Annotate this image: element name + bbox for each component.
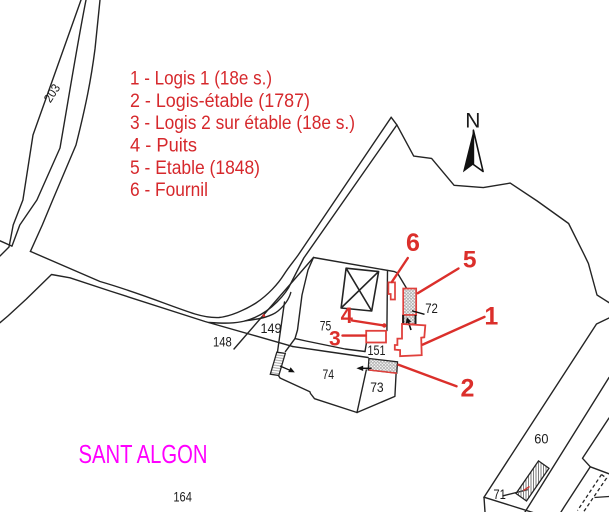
svg-text:1 - Logis 1 (18e s.): 1 - Logis 1 (18e s.) — [130, 69, 272, 90]
svg-text:N: N — [465, 110, 480, 133]
svg-text:72: 72 — [425, 301, 438, 316]
svg-text:5: 5 — [463, 247, 477, 274]
svg-text:149: 149 — [261, 321, 282, 336]
svg-text:6: 6 — [406, 229, 420, 257]
svg-text:6 - Fournil: 6 - Fournil — [130, 180, 208, 201]
svg-text:SANT ALGON: SANT ALGON — [79, 441, 208, 469]
svg-text:5 - Etable (1848): 5 - Etable (1848) — [130, 158, 260, 179]
svg-text:3 - Logis 2 sur étable (18e s.: 3 - Logis 2 sur étable (18e s.) — [130, 113, 355, 134]
svg-text:60: 60 — [534, 431, 548, 447]
svg-text:164: 164 — [173, 490, 192, 505]
svg-text:1: 1 — [484, 302, 498, 330]
svg-text:4 - Puits: 4 - Puits — [130, 136, 197, 157]
svg-text:2: 2 — [461, 375, 475, 403]
svg-text:73: 73 — [370, 380, 384, 395]
svg-text:75: 75 — [320, 318, 332, 333]
svg-text:148: 148 — [213, 334, 232, 349]
svg-text:2 - Logis-étable (1787): 2 - Logis-étable (1787) — [130, 91, 310, 112]
svg-text:71: 71 — [493, 487, 506, 502]
svg-text:4: 4 — [341, 303, 354, 328]
svg-text:151: 151 — [368, 343, 386, 358]
svg-text:74: 74 — [323, 367, 335, 382]
